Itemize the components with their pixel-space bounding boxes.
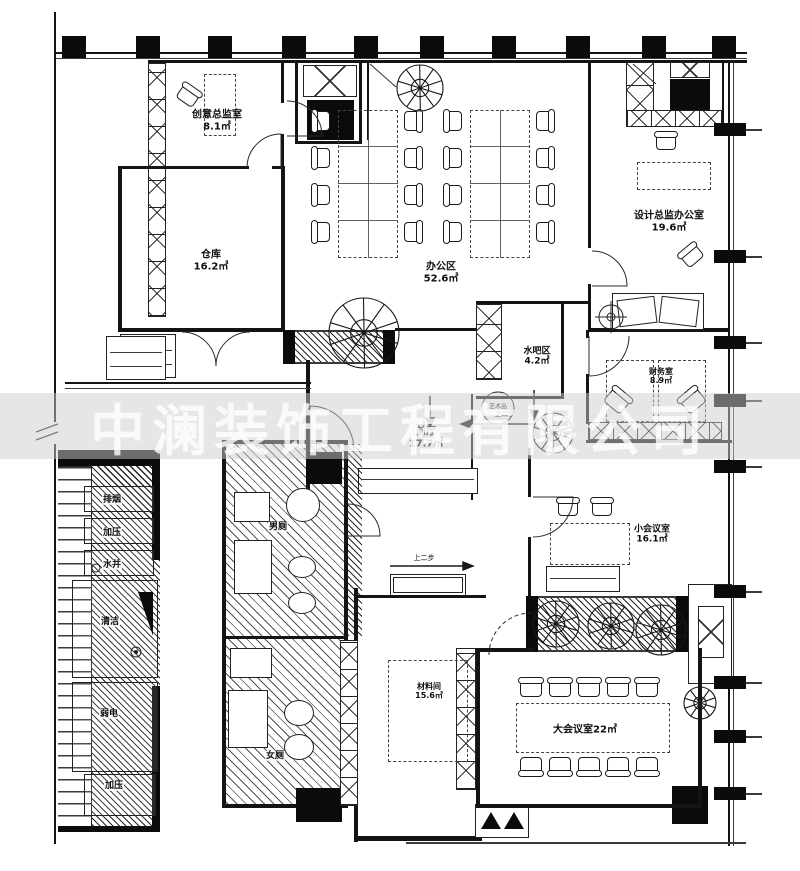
wall-warehouse-right [281,166,285,332]
shaft-cell-lowvoltage [72,682,158,772]
wall-finance-left-b [586,374,589,424]
wc-fixture [234,492,270,522]
wall-lift-left [295,62,298,144]
planter-edge [283,330,395,332]
office-chair [536,185,552,205]
wall-xstrip-left [340,640,358,806]
room-area: 17.7㎡ [409,438,444,449]
room-label-design-director: 设计总监办公室 19.6㎡ [634,211,704,234]
elevator-shaft-symbol-2 [670,62,710,78]
column [566,36,590,58]
wc-sink-round [286,488,320,522]
note-up-two-steps-2: 上二步 [414,554,435,562]
shaft-label-low-voltage: 弱电 [99,709,119,719]
wall-creative-right-b [281,134,284,169]
room-area: 22㎡ [593,724,617,735]
desk-cluster-b [470,110,530,258]
meeting-chair [558,500,578,516]
column [208,36,232,58]
wall-warehouse-left [118,166,122,332]
cabinet-corridor [106,336,166,380]
wall-creative-bottom-a [148,166,249,169]
grid-line-left-upper [54,12,56,422]
meeting-chair [607,680,629,697]
shaft-wall-bottom [58,826,160,832]
office-chair [536,111,552,131]
wall-waterbar-bottom [476,396,564,399]
room-name: 创意总监室 [192,110,242,121]
shaft-name: 加压 [102,528,122,538]
wall-office-bottom [395,328,477,331]
shaft-name: 水井 [102,560,122,570]
column [714,250,746,263]
room-area: 19.6㎡ [652,222,687,233]
wall-corridor-left-2 [65,388,311,389]
wc-toilet [284,700,314,726]
sofa-cushion [658,296,699,327]
grid-line-top-2 [55,58,747,59]
grid-tick [746,400,762,402]
room-name: 大会议室 [553,724,593,735]
tree-symbol [397,65,443,111]
cabinet-row-top-right [626,110,722,127]
column [714,394,746,407]
shaft-name: 清洁 [100,617,120,627]
window-strip-left [148,63,166,317]
room-area: 8.9㎡ [650,376,672,385]
wc-toilet [284,734,314,760]
note-text: 上二步 [414,554,435,562]
wc-fixture [228,690,268,748]
grid-tick [746,129,762,131]
column [282,36,306,58]
column [714,676,746,689]
shaft-wedge [138,592,153,636]
diagonal-lines [370,64,656,87]
office-chair [536,148,552,168]
grid-tick [746,591,762,593]
room-name: 男厕 [268,522,288,532]
planter-edge [283,362,395,364]
planter-cap [676,596,688,652]
stair-triangle [504,812,524,829]
wall-top [148,60,747,63]
room-name: 材料间 [417,682,441,691]
room-label-creative-director: 创意总监室 8.1㎡ [192,110,242,133]
wall-corridor-left [65,382,311,384]
office-chair [404,111,420,131]
column [62,36,86,58]
office-chair [404,148,420,168]
wall-wc-left [222,440,226,808]
meeting-chair [578,680,600,697]
reception-counter [358,468,478,494]
table-smallmeeting [550,523,630,565]
elevator-shaft-symbol [303,65,357,97]
office-chair [404,222,420,242]
cabinet-row-finance [588,422,722,440]
step-platform [390,574,466,596]
floor-plan: 创意总监室 8.1㎡ 仓库 16.2㎡ 办公区 52.6㎡ 设计总监办公室 19… [0,0,800,871]
room-area: 16.2㎡ [194,261,229,272]
wall-design-left-a [588,62,591,248]
office-chair [404,185,420,205]
room-area: 15.6㎡ [415,691,443,700]
column [642,36,666,58]
sofa-cushion [616,296,657,327]
room-label-womens-wc: 女厕 [265,751,285,761]
room-area: 16.1㎡ [636,535,667,545]
column-wc-top [306,452,342,484]
shaft-label-smoke: 排烟 [102,495,122,505]
note-text: 艺术品 [489,404,507,411]
sofa-line [550,578,616,579]
column [714,730,746,743]
wall-largemeeting-bottom [478,804,702,808]
grid-line-left-lower [54,444,56,844]
room-label-office-area: 办公区 52.6㎡ [424,262,459,285]
column [712,36,736,58]
desk-design-director [637,162,711,190]
room-label-finance: 财务室 8.9㎡ [649,367,673,385]
wall-bottom-a [354,836,482,841]
room-label-warehouse: 仓库 16.2㎡ [194,250,229,273]
grid-tick [746,342,762,344]
wall-largemeeting-right [698,648,702,808]
room-area: 52.6㎡ [424,273,459,284]
cabinet-waterbar [476,304,502,380]
shaft-name: 加压 [104,781,124,791]
shaft-name: 排烟 [102,495,122,505]
wall-warehouse-bottom [118,328,285,332]
room-label-small-meeting: 小会议室 16.1㎡ [634,525,670,546]
shaft-wall-top [58,450,160,466]
wc-fixture [234,540,272,594]
room-name: 小会议室 [634,525,670,535]
wall-warehouse-top [118,166,152,169]
wall-platform [354,595,486,598]
break-symbol [36,424,58,440]
wall-largemeeting-top [476,648,534,652]
room-label-front-hall: 前厅 17.7㎡ [409,427,444,450]
room-label-material-room: 材料间 15.6㎡ [415,682,443,700]
sofa-smallmeeting [546,566,620,592]
shaft-label-pressure-bottom: 加压 [104,781,124,791]
office-chair [314,222,330,242]
office-chair [314,148,330,168]
grid-line-right [728,60,730,846]
room-area: 8.1㎡ [203,121,231,132]
column-wc-bottom [296,788,342,822]
design-chair [679,243,705,268]
grid-tick [746,256,762,258]
column [420,36,444,58]
column [714,123,746,136]
shaft-label-cleaning: 清洁 [100,617,120,627]
grid-tick [746,682,762,684]
creative-chair [175,84,201,109]
wc-toilet [288,592,316,614]
column [354,36,378,58]
planter-cap [383,330,395,364]
wall-bottom-outer [406,842,746,844]
room-label-water-bar: 水吧区 4.2㎡ [523,347,550,368]
shaft-label-water-well: 水井 [102,560,122,570]
office-chair [536,222,552,242]
grid-tick [746,736,762,738]
wall-creative-right-a [281,62,284,103]
wc-toilet [288,556,316,578]
wc-fixture [230,648,272,678]
room-name: 前厅 [416,427,436,438]
wall-wc-top [222,440,348,444]
meeting-chair [592,500,612,516]
wall-smallmeeting-left-b [528,537,531,598]
column [714,460,746,473]
room-name: 设计总监办公室 [634,211,704,222]
cabinet-line [110,352,162,353]
planter-edge [526,596,688,598]
office-chair [446,148,462,168]
wall-largemeeting-left [476,648,480,808]
planter-edge [526,650,688,652]
meeting-chair [549,757,571,774]
shaft-name: 弱电 [99,709,119,719]
column [136,36,160,58]
office-chair [446,111,462,131]
room-label-large-meeting: 大会议室22㎡ [553,724,617,736]
note-artwork: 艺术品 [489,405,507,412]
shaft-wall-right-a [152,466,160,560]
wall-design-left-b [588,284,591,332]
room-name: 办公区 [426,262,456,273]
meeting-chair [549,680,571,697]
grid-line-right-2 [733,60,734,846]
meeting-chair [636,680,658,697]
shaft-label-pressure-top: 加压 [102,528,122,538]
wall-finance-left-a [586,330,589,338]
meeting-chair [607,757,629,774]
office-chair [314,185,330,205]
planter-cap [283,330,295,364]
meeting-chair [520,680,542,697]
counter-line [362,479,474,480]
office-chair [314,111,330,131]
column [492,36,516,58]
material-room-outline [388,660,468,762]
column [714,787,746,800]
office-chair [446,222,462,242]
planter-center [283,330,395,364]
room-label-mens-wc: 男厕 [268,522,288,532]
room-name: 财务室 [649,367,673,376]
room-name: 水吧区 [523,347,550,357]
planter-right [526,596,688,652]
elevator-door-strip [626,62,654,114]
meeting-chair [578,757,600,774]
wall-wc-divider [222,636,348,639]
design-chair [656,134,676,150]
planter-cap [526,596,538,652]
grid-tick [746,466,762,468]
room-name: 仓库 [201,250,221,261]
column [714,336,746,349]
office-chair [446,185,462,205]
wall-smallmeeting-left-a [528,448,531,497]
room-name: 女厕 [265,751,285,761]
cabinet-line [110,366,162,367]
stair-triangle [481,812,501,829]
grid-tick [746,793,762,795]
shaft-solid-right [670,79,710,112]
desk-cluster-a [338,110,398,258]
meeting-chair [636,757,658,774]
tree-symbol [533,413,573,453]
wall-smallmeeting-top [586,440,732,443]
meeting-chair [520,757,542,774]
wall-lift-right-edge [722,62,724,128]
column [714,585,746,598]
wall-waterbar-right [561,304,564,399]
room-area: 4.2㎡ [525,357,550,367]
